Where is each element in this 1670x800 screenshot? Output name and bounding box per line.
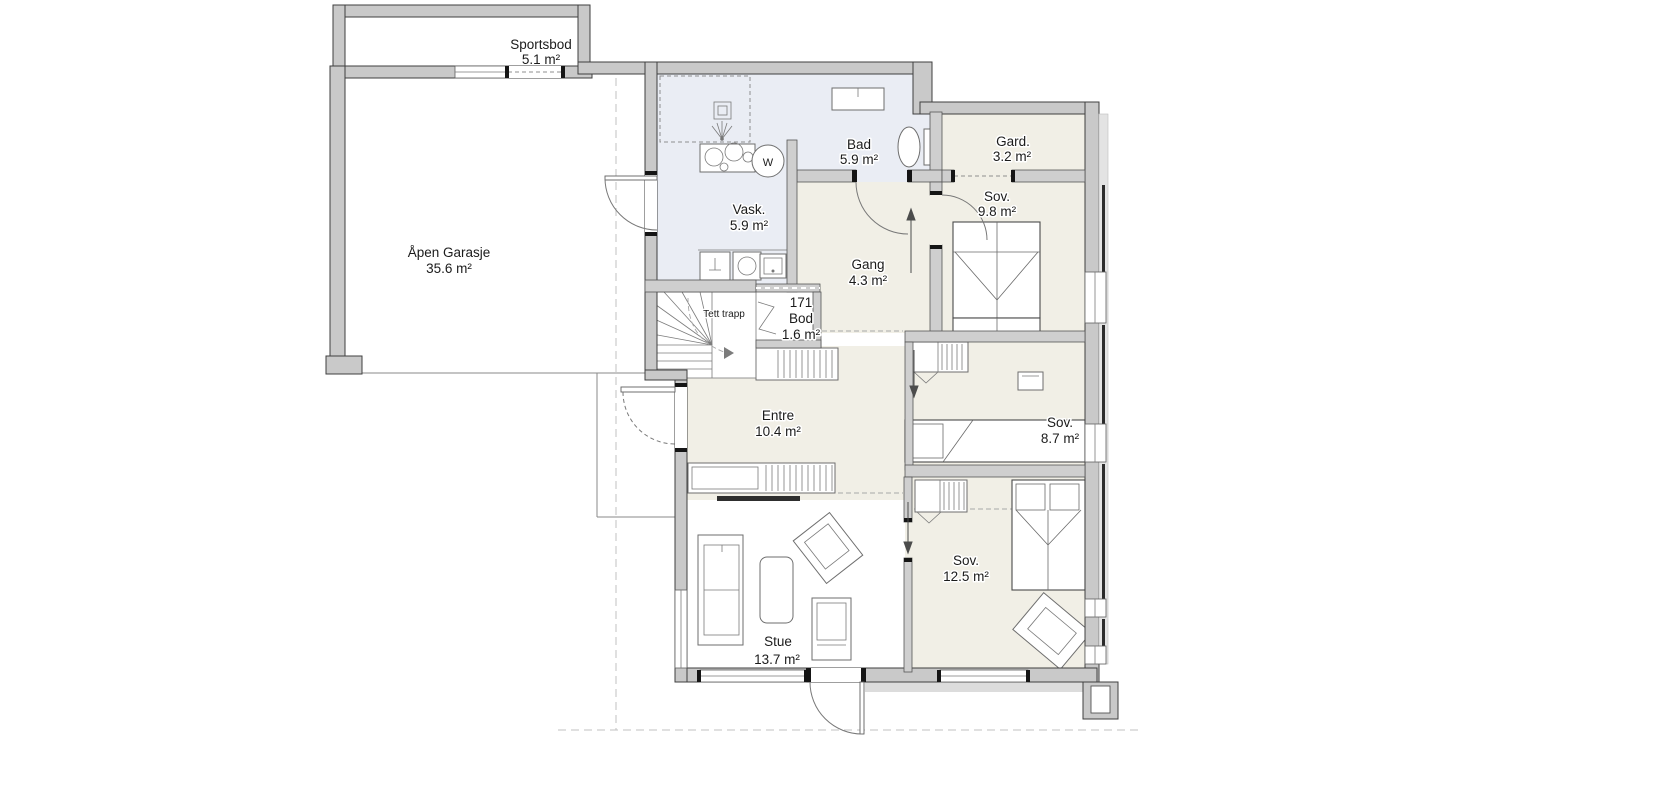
room-area-gang: 4.3 m² — [849, 273, 888, 288]
armchair-icon-rotated — [793, 513, 862, 584]
room-label-gard: Gard. — [996, 134, 1030, 149]
floor-plan-page: W — [0, 0, 1670, 800]
wall-gard-south-b — [1012, 170, 1085, 182]
double-bed-icon — [953, 222, 1040, 335]
wall-main-north — [645, 62, 920, 74]
wall-gang-east-b — [930, 245, 942, 333]
east-facade-lines — [1102, 185, 1105, 646]
wall-stair-north — [645, 280, 756, 292]
door-leaf-main-entrance — [860, 682, 864, 734]
wardrobe-icon — [756, 348, 838, 380]
door-opening-main-entrance — [810, 668, 862, 682]
wall-northeast — [920, 102, 1099, 114]
room-label-sov3: Sov. — [953, 553, 979, 568]
floor-plan-drawing: W — [0, 0, 1670, 800]
room-label-entre: Entre — [762, 408, 794, 423]
room-label-bad: Bad — [847, 137, 871, 152]
wall-west-step — [645, 370, 687, 380]
washing-machine-label: W — [763, 157, 774, 169]
coffee-table-icon — [760, 557, 793, 623]
wall-bad-south-b — [908, 170, 942, 182]
bench-icon — [832, 88, 884, 110]
room-label-sov2: Sov. — [1047, 415, 1073, 430]
room-area-entre: 10.4 m² — [755, 424, 801, 439]
wall-bad-south-a — [797, 170, 856, 182]
label-tett-trapp: Tett trapp — [703, 309, 745, 320]
room-number-bod: 171 — [790, 295, 813, 310]
room-area-stue: 13.7 m² — [754, 652, 800, 667]
wall-sportsbod-east — [578, 5, 590, 62]
wall-sov2-west — [905, 342, 913, 470]
entrance-slab — [865, 682, 1097, 692]
room-area-bad: 5.9 m² — [840, 152, 879, 167]
wall-sportsbod-west — [333, 5, 345, 68]
garage-pillar — [326, 356, 362, 374]
room-label-garasje: Åpen Garasje — [408, 245, 491, 260]
door-opening-vask — [645, 175, 657, 232]
floor-stair — [652, 292, 756, 378]
washing-machine-icon: W — [752, 145, 784, 177]
room-area-gard: 3.2 m² — [993, 149, 1032, 164]
room-area-sov1: 9.8 m² — [978, 204, 1017, 219]
laundry-counter-icon — [698, 250, 787, 280]
door-opening-entre-west — [675, 387, 687, 448]
room-label-gang: Gang — [851, 257, 884, 272]
sofa-icon — [698, 535, 743, 645]
wall-sov1-south — [905, 331, 1085, 342]
room-area-sov3: 12.5 m² — [943, 569, 989, 584]
door-arc-main-entrance — [810, 682, 862, 734]
door-mat — [717, 496, 800, 501]
window-sov1-east — [1085, 272, 1106, 323]
room-area-garasje: 35.6 m² — [426, 261, 472, 276]
room-label-stue: Stue — [764, 634, 792, 649]
room-label-bod: Bod — [789, 311, 813, 326]
room-area-sov2: 8.7 m² — [1041, 431, 1080, 446]
door-leaf-entre-west — [621, 387, 675, 392]
wall-sov3-west-b — [904, 558, 912, 672]
room-label-sov1: Sov. — [984, 189, 1010, 204]
window-sov3-east-b — [1085, 646, 1106, 664]
double-bed-icon-2 — [1012, 480, 1085, 590]
room-label-vask: Vask. — [733, 202, 766, 217]
armchair-icon — [812, 598, 851, 660]
room-area-bod: 1.6 m² — [782, 327, 821, 342]
sink-vanity-icon — [700, 143, 755, 172]
wall-garage-west — [330, 66, 345, 358]
wall-east — [1085, 102, 1099, 682]
room-area-sportsbod: 5.1 m² — [522, 52, 561, 67]
door-arc-entre-west — [623, 392, 675, 444]
door-leaf-vask — [605, 176, 657, 180]
wall-sov2-south — [905, 465, 1085, 477]
window-sov2-east — [1085, 424, 1106, 462]
door-opening-sov1 — [930, 195, 942, 245]
wall-sportsbod-north — [333, 5, 590, 17]
room-label-sportsbod: Sportsbod — [510, 37, 572, 52]
wall-vask-east — [787, 140, 797, 292]
room-area-vask: 5.9 m² — [730, 218, 769, 233]
nightstand-icon — [1018, 372, 1043, 390]
chimney-icon — [1083, 682, 1118, 719]
window-sov3-east-a — [1085, 599, 1106, 617]
